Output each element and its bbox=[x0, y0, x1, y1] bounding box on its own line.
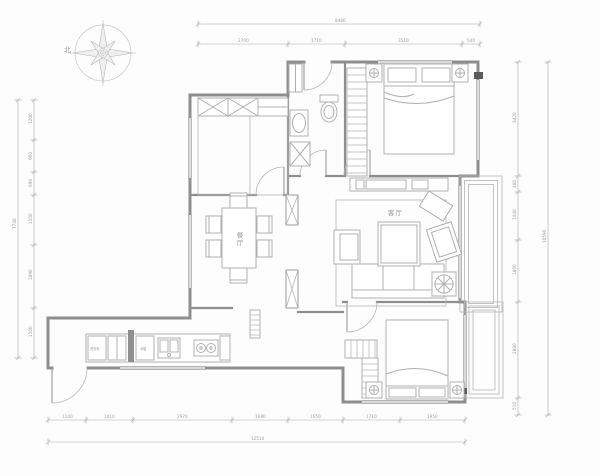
toilet bbox=[320, 95, 338, 122]
svg-text:690: 690 bbox=[28, 179, 33, 187]
svg-text:1950: 1950 bbox=[427, 414, 438, 419]
column-hatch-lower bbox=[286, 270, 298, 308]
svg-text:1440: 1440 bbox=[512, 209, 517, 220]
svg-text:1500: 1500 bbox=[28, 326, 33, 337]
window-dining-left bbox=[188, 215, 193, 288]
svg-text:1860: 1860 bbox=[512, 264, 517, 275]
master-nightstand-left bbox=[366, 64, 382, 82]
flue-marker-top bbox=[474, 72, 483, 79]
svg-text:7740: 7740 bbox=[12, 218, 17, 229]
master-nightstand-right bbox=[452, 64, 468, 82]
svg-text:1650: 1650 bbox=[310, 414, 321, 419]
column-hatch-upper bbox=[286, 195, 298, 225]
plant-stand bbox=[432, 272, 456, 296]
radiator bbox=[250, 310, 260, 338]
svg-text:2880: 2880 bbox=[512, 343, 517, 354]
svg-text:480: 480 bbox=[512, 180, 517, 188]
balcony-door-bottom-left bbox=[52, 368, 87, 403]
shower-tray bbox=[290, 142, 310, 166]
svg-text:2700: 2700 bbox=[238, 38, 249, 43]
fridge-label: 冰箱 bbox=[140, 346, 147, 351]
svg-text:3510: 3510 bbox=[398, 38, 409, 43]
svg-text:1680: 1680 bbox=[255, 414, 266, 419]
bedroom2-bed bbox=[386, 320, 448, 399]
chaise-top-right bbox=[419, 191, 452, 221]
entry-door bbox=[304, 62, 332, 90]
svg-text:8460: 8460 bbox=[335, 18, 346, 23]
svg-text:2970: 2970 bbox=[177, 414, 188, 419]
svg-text:1890: 1890 bbox=[28, 269, 33, 280]
washing-machine-label: 洗衣机 bbox=[90, 346, 100, 351]
window-kitchen-bottom bbox=[120, 366, 205, 371]
master-bed bbox=[384, 64, 454, 154]
window-bedroom2-bottom bbox=[362, 400, 448, 405]
coffee-table bbox=[378, 222, 420, 266]
master-wardrobe bbox=[347, 68, 367, 176]
dimension-lines: 8460 2700 1710 3510 540 7740 1200 960 69… bbox=[12, 18, 552, 446]
svg-text:1710: 1710 bbox=[366, 414, 377, 419]
svg-text:1140: 1140 bbox=[62, 414, 73, 419]
compass-north-label: 北 bbox=[64, 46, 71, 54]
svg-text:3420: 3420 bbox=[512, 112, 517, 123]
svg-text:540: 540 bbox=[467, 38, 475, 43]
svg-text:12510: 12510 bbox=[251, 436, 265, 441]
bathroom-sink bbox=[290, 110, 308, 136]
bedroom2-nightstand-right bbox=[450, 382, 464, 398]
bedroom1-door bbox=[256, 167, 284, 195]
compass-rose-icon bbox=[70, 20, 136, 86]
sofa bbox=[352, 264, 444, 298]
svg-text:10590: 10590 bbox=[542, 229, 547, 243]
svg-text:1200: 1200 bbox=[28, 113, 33, 124]
balcony-right bbox=[460, 176, 502, 312]
kitchen-cabinet bbox=[108, 336, 126, 360]
bedroom2-wardrobe-top bbox=[345, 340, 377, 358]
window-bedroom1-left bbox=[188, 118, 193, 178]
bay-window-bottom-right bbox=[465, 302, 503, 398]
living-room-label: 客厅 bbox=[388, 208, 403, 217]
svg-text:1500: 1500 bbox=[28, 213, 33, 224]
floor-plan-drawing: 北 bbox=[0, 0, 600, 476]
window-master-right bbox=[476, 80, 481, 160]
tv-cabinet bbox=[350, 178, 448, 191]
dining-room-label: 餐厅 bbox=[235, 231, 243, 247]
kitchen-wall-stub bbox=[128, 330, 134, 362]
armchair-right bbox=[426, 222, 461, 262]
armchair-left bbox=[334, 230, 360, 264]
stove bbox=[194, 340, 218, 356]
entry-cabinet bbox=[289, 64, 302, 92]
svg-text:960: 960 bbox=[28, 152, 33, 160]
bedroom2-door bbox=[347, 302, 377, 332]
svg-text:1710: 1710 bbox=[311, 38, 322, 43]
svg-text:510: 510 bbox=[512, 402, 517, 410]
floor-plan-page: 北 bbox=[0, 0, 600, 476]
bedroom2-nightstand-left bbox=[366, 382, 382, 398]
svg-text:1410: 1410 bbox=[104, 414, 115, 419]
bedroom1-wardrobe bbox=[198, 98, 288, 116]
kitchen-end-cabinet bbox=[220, 336, 230, 360]
kitchen-sink bbox=[158, 338, 180, 358]
bedroom1-floor-area bbox=[198, 116, 288, 195]
